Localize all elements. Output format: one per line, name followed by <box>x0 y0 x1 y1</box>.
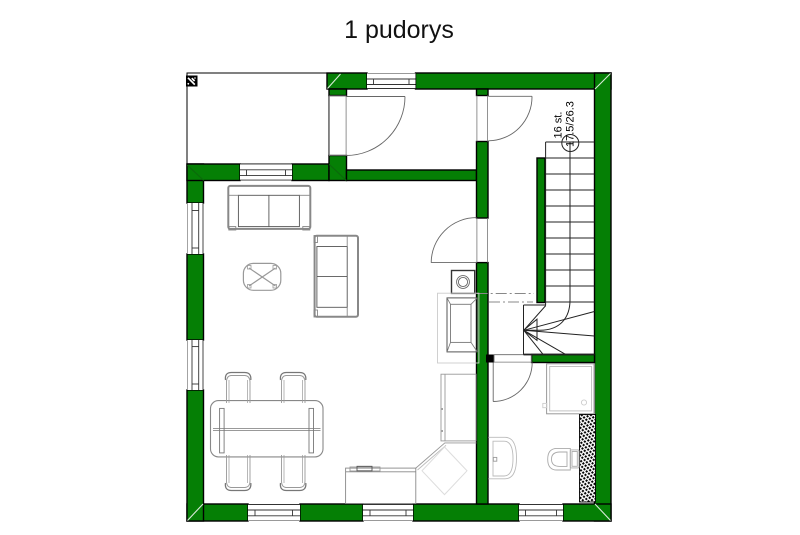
svg-text:16 st.: 16 st. <box>553 112 565 139</box>
svg-text:1 pudorys: 1 pudorys <box>344 16 454 44</box>
svg-text:17.5/26.3: 17.5/26.3 <box>565 101 577 147</box>
